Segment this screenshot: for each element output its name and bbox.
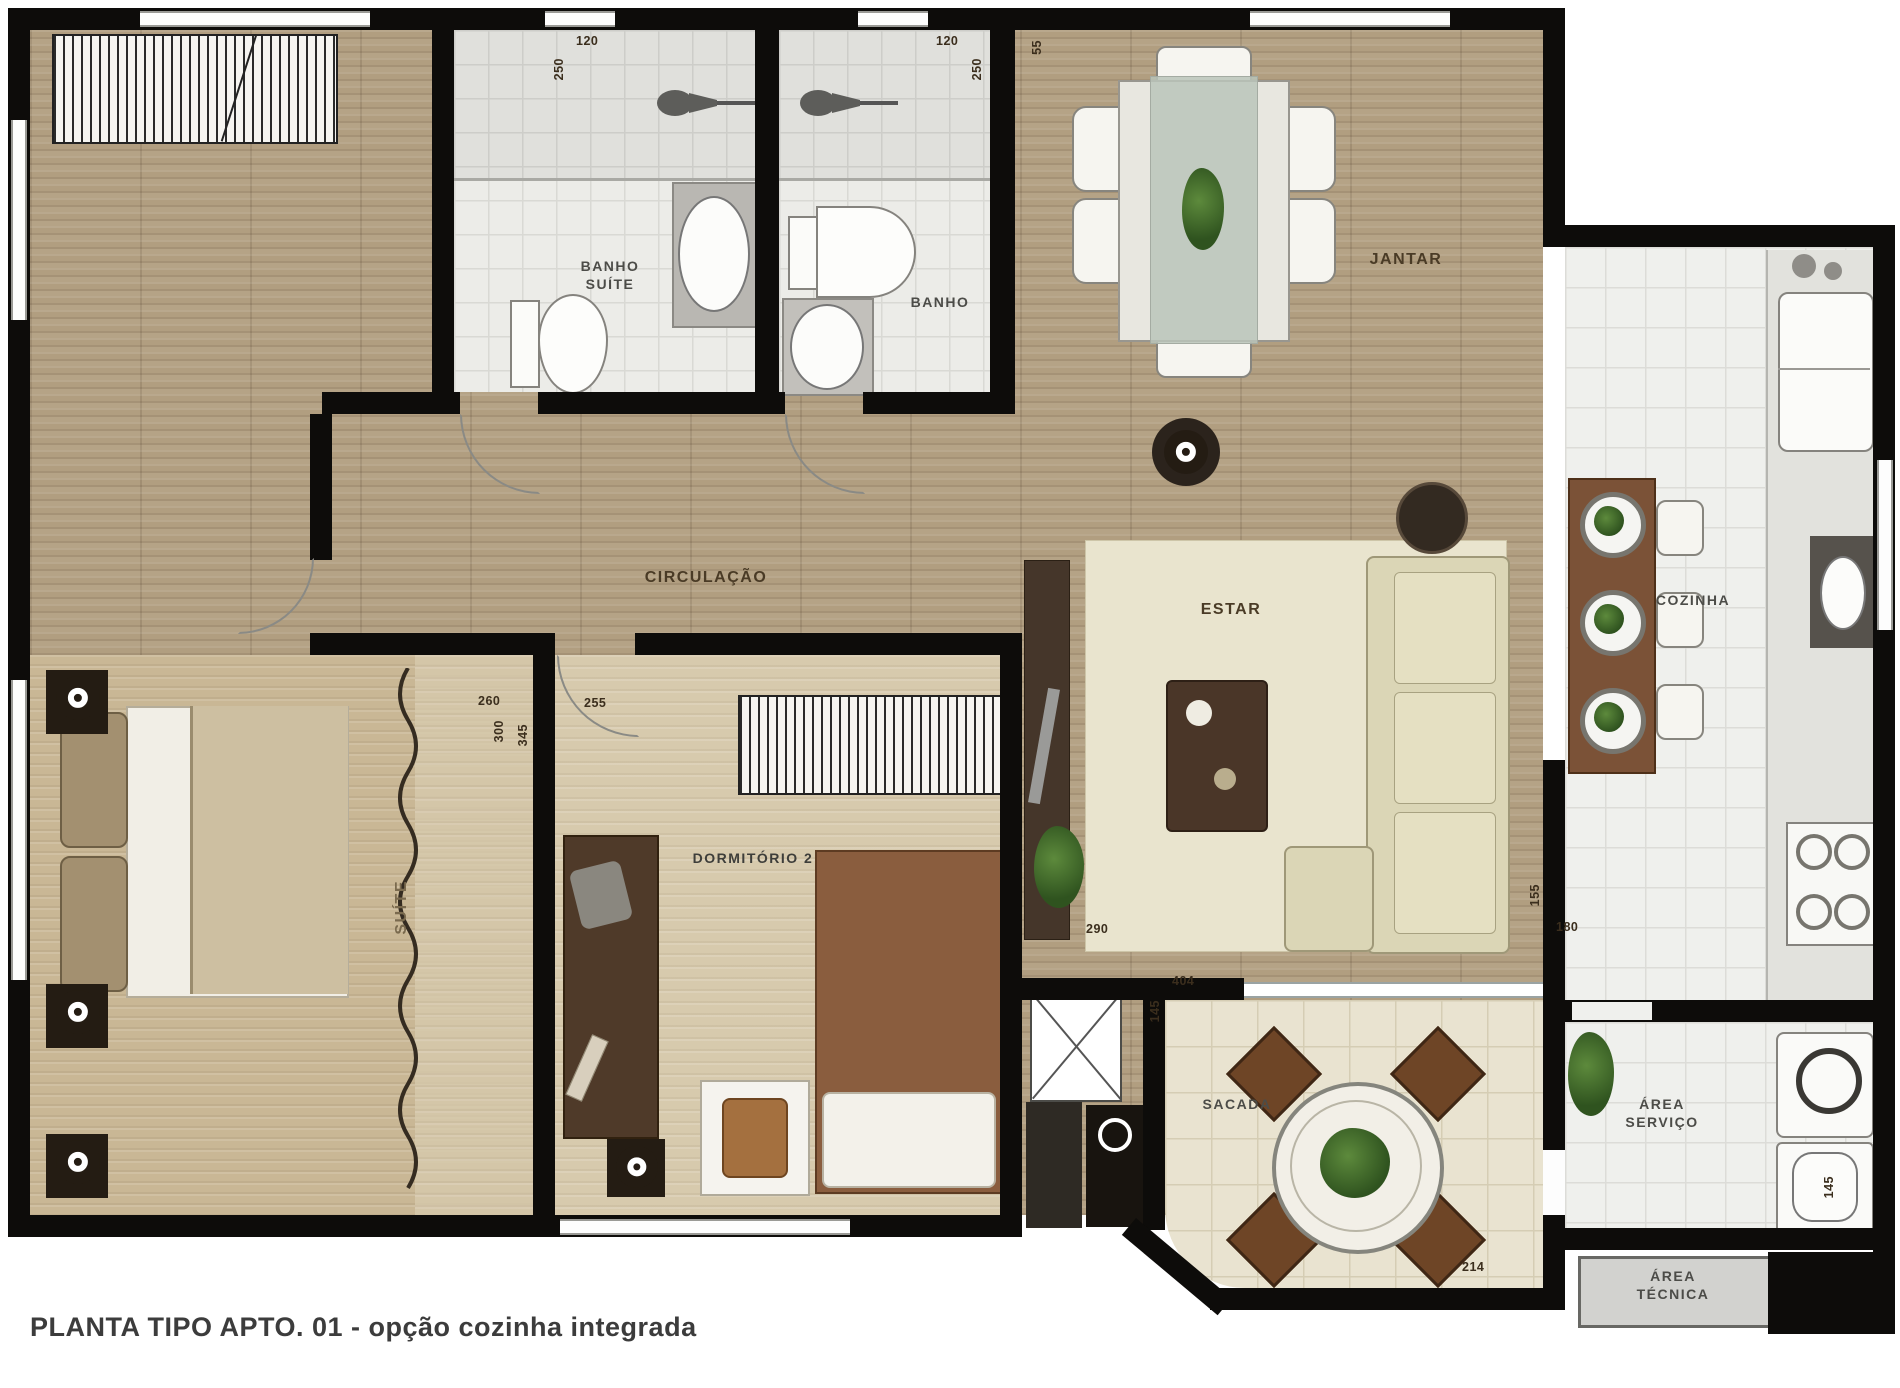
sink-icon xyxy=(1820,556,1866,630)
room-label-cozinha: COZINHA xyxy=(1638,592,1748,610)
floor-plan-canvas: SUÍTE BANHO SUÍTE BANHO JANTAR CIRCULAÇÃ… xyxy=(0,0,1900,1388)
window xyxy=(11,120,27,320)
room-label-banho-suite: BANHO SUÍTE xyxy=(545,258,675,293)
fixture-icon xyxy=(1792,254,1816,278)
room-label-area-servico: ÁREA SERVIÇO xyxy=(1602,1096,1722,1131)
suite-bed-blanket xyxy=(190,706,348,994)
window xyxy=(545,11,615,27)
dining-chair xyxy=(1282,106,1336,192)
utility-cabinet xyxy=(1026,1102,1082,1228)
shower-glass xyxy=(454,178,755,181)
bowl-icon xyxy=(1594,604,1624,634)
shower-head-icon xyxy=(655,80,759,126)
dimension: 255 xyxy=(584,696,606,710)
plant-icon xyxy=(1034,826,1084,908)
coffee-table xyxy=(1166,680,1268,832)
window xyxy=(858,11,928,27)
dimension: 345 xyxy=(516,724,530,746)
window xyxy=(1877,460,1893,630)
wall xyxy=(1873,225,1895,1334)
wall xyxy=(1022,978,1244,1000)
dimension: 300 xyxy=(492,720,506,742)
decor-icon xyxy=(1186,700,1212,726)
plan-title: PLANTA TIPO APTO. 01 - opção cozinha int… xyxy=(30,1312,697,1343)
room-label-jantar: JANTAR xyxy=(1346,250,1466,270)
window xyxy=(140,11,370,27)
wall xyxy=(1210,1288,1565,1310)
curtain-squiggle xyxy=(386,668,430,1216)
wall xyxy=(863,392,1015,414)
lamp-icon xyxy=(56,1140,100,1184)
door-opening xyxy=(1572,1002,1652,1020)
bowl-icon xyxy=(1594,702,1624,732)
window xyxy=(11,680,27,980)
dimension: 55 xyxy=(1030,40,1044,55)
stove xyxy=(1786,822,1876,946)
toilet-tank xyxy=(788,216,818,290)
toilet-tank xyxy=(510,300,540,388)
wall xyxy=(432,30,454,414)
lamp-icon xyxy=(1164,430,1208,474)
wall xyxy=(1000,633,1022,1230)
lamp-icon xyxy=(616,1146,658,1188)
window xyxy=(1250,11,1450,27)
dimension: 214 xyxy=(1462,1260,1484,1274)
sofa-cushion xyxy=(1394,572,1496,684)
wall xyxy=(635,633,1015,655)
fridge-door-line xyxy=(1778,368,1870,370)
wall xyxy=(533,633,555,1215)
shaft-box xyxy=(1030,990,1122,1102)
room-label-banho: BANHO xyxy=(890,294,990,312)
dimension: 260 xyxy=(478,694,500,708)
fixture-icon xyxy=(1824,262,1842,280)
dimension: 404 xyxy=(1172,974,1194,988)
sliding-glass-door xyxy=(1244,982,1543,998)
sink-icon xyxy=(790,304,864,390)
wall xyxy=(310,633,555,655)
wall xyxy=(1543,760,1565,1005)
dimension: 120 xyxy=(936,34,958,48)
fixture-icon xyxy=(1098,1118,1132,1152)
side-table xyxy=(1396,482,1468,554)
plant-icon xyxy=(1182,168,1224,250)
dimension: 145 xyxy=(1822,1176,1836,1198)
dimension: 120 xyxy=(576,34,598,48)
plant-icon xyxy=(1320,1128,1390,1198)
wall xyxy=(1768,1252,1873,1334)
sofa-cushion xyxy=(1394,692,1496,804)
wall xyxy=(1543,225,1895,247)
dimension: 180 xyxy=(1556,920,1578,934)
window xyxy=(560,1219,850,1235)
wall xyxy=(310,414,332,560)
room-label-area-tecnica: ÁREA TÉCNICA xyxy=(1598,1268,1748,1303)
wall xyxy=(1565,1228,1873,1250)
shower-head-icon xyxy=(798,80,902,126)
dimension: 155 xyxy=(1528,884,1542,906)
suite-pillow xyxy=(60,856,128,992)
bar-stool xyxy=(1656,500,1704,556)
wall xyxy=(990,30,1015,414)
dimension: 145 xyxy=(1148,1000,1162,1022)
room-label-estar: ESTAR xyxy=(1186,600,1276,620)
wall xyxy=(1543,1005,1565,1150)
dimension: 250 xyxy=(970,58,984,80)
room-label-suite: SUÍTE xyxy=(392,880,412,935)
suite-wardrobe xyxy=(52,34,338,144)
bench-cushion xyxy=(722,1098,788,1178)
fridge xyxy=(1778,292,1874,452)
decor-icon xyxy=(1214,768,1236,790)
washer-door-icon xyxy=(1796,1048,1862,1114)
dimension: 290 xyxy=(1086,922,1108,936)
bar-stool xyxy=(1656,684,1704,740)
lamp-icon xyxy=(56,990,100,1034)
dimension: 250 xyxy=(552,58,566,80)
room-label-dormitorio2: DORMITÓRIO 2 xyxy=(668,850,838,868)
lamp-icon xyxy=(56,676,100,720)
room-label-circulacao: CIRCULAÇÃO xyxy=(616,568,796,588)
door-opening xyxy=(1543,1150,1565,1215)
wall xyxy=(8,1215,1022,1237)
wall xyxy=(755,30,779,414)
room-label-sacada: SACADA xyxy=(1182,1096,1292,1114)
wall xyxy=(322,392,460,414)
toilet-icon xyxy=(816,206,916,298)
sink-icon xyxy=(678,196,750,312)
dorm2-pillow xyxy=(822,1092,996,1188)
wall xyxy=(538,392,785,414)
shower-glass xyxy=(779,178,990,181)
wall xyxy=(1543,8,1565,225)
bowl-icon xyxy=(1594,506,1624,536)
sofa-chaise xyxy=(1284,846,1374,952)
sofa-cushion xyxy=(1394,812,1496,934)
dining-chair xyxy=(1282,198,1336,284)
dorm2-wardrobe xyxy=(738,695,1004,795)
